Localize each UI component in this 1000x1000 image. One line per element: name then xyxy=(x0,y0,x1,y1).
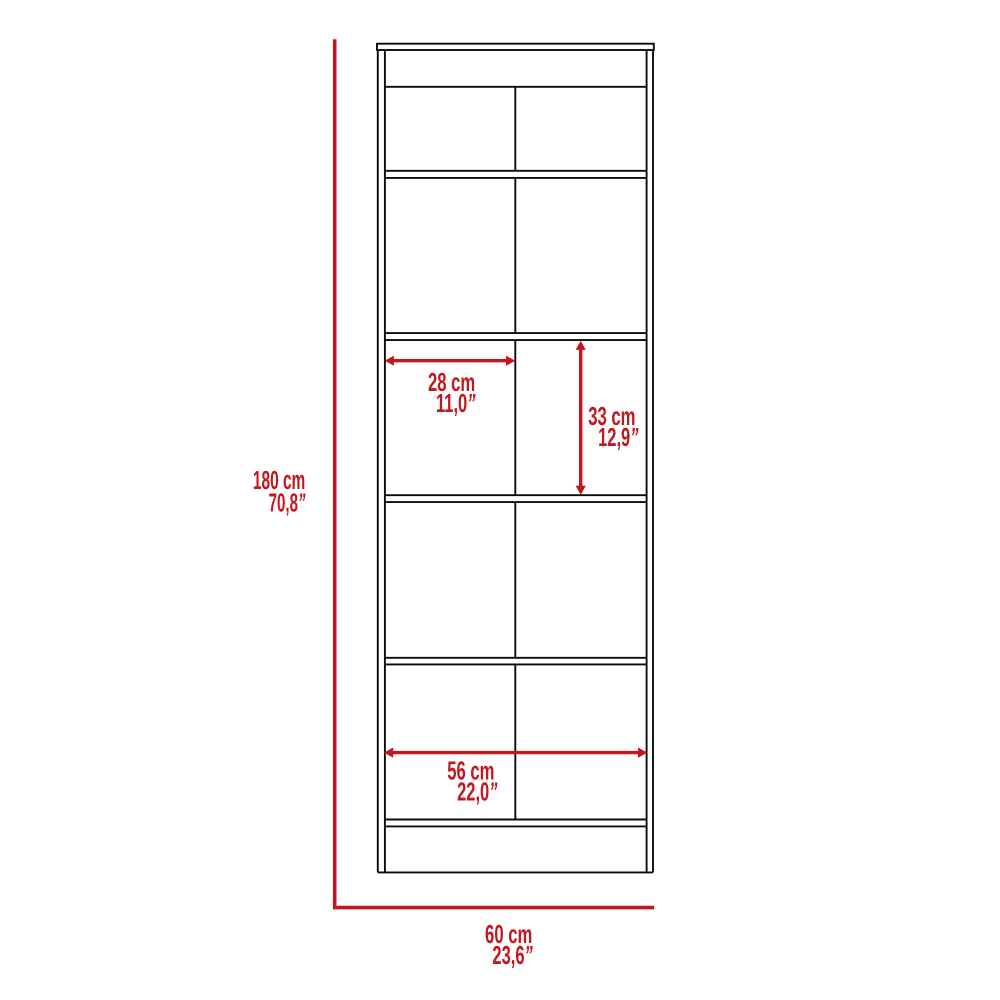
svg-text:23,6”: 23,6” xyxy=(492,940,532,970)
svg-text:11,0”: 11,0” xyxy=(436,388,476,418)
svg-text:12,9”: 12,9” xyxy=(598,422,638,452)
svg-text:22,0”: 22,0” xyxy=(457,777,497,807)
svg-text:70,8”: 70,8” xyxy=(269,488,306,517)
